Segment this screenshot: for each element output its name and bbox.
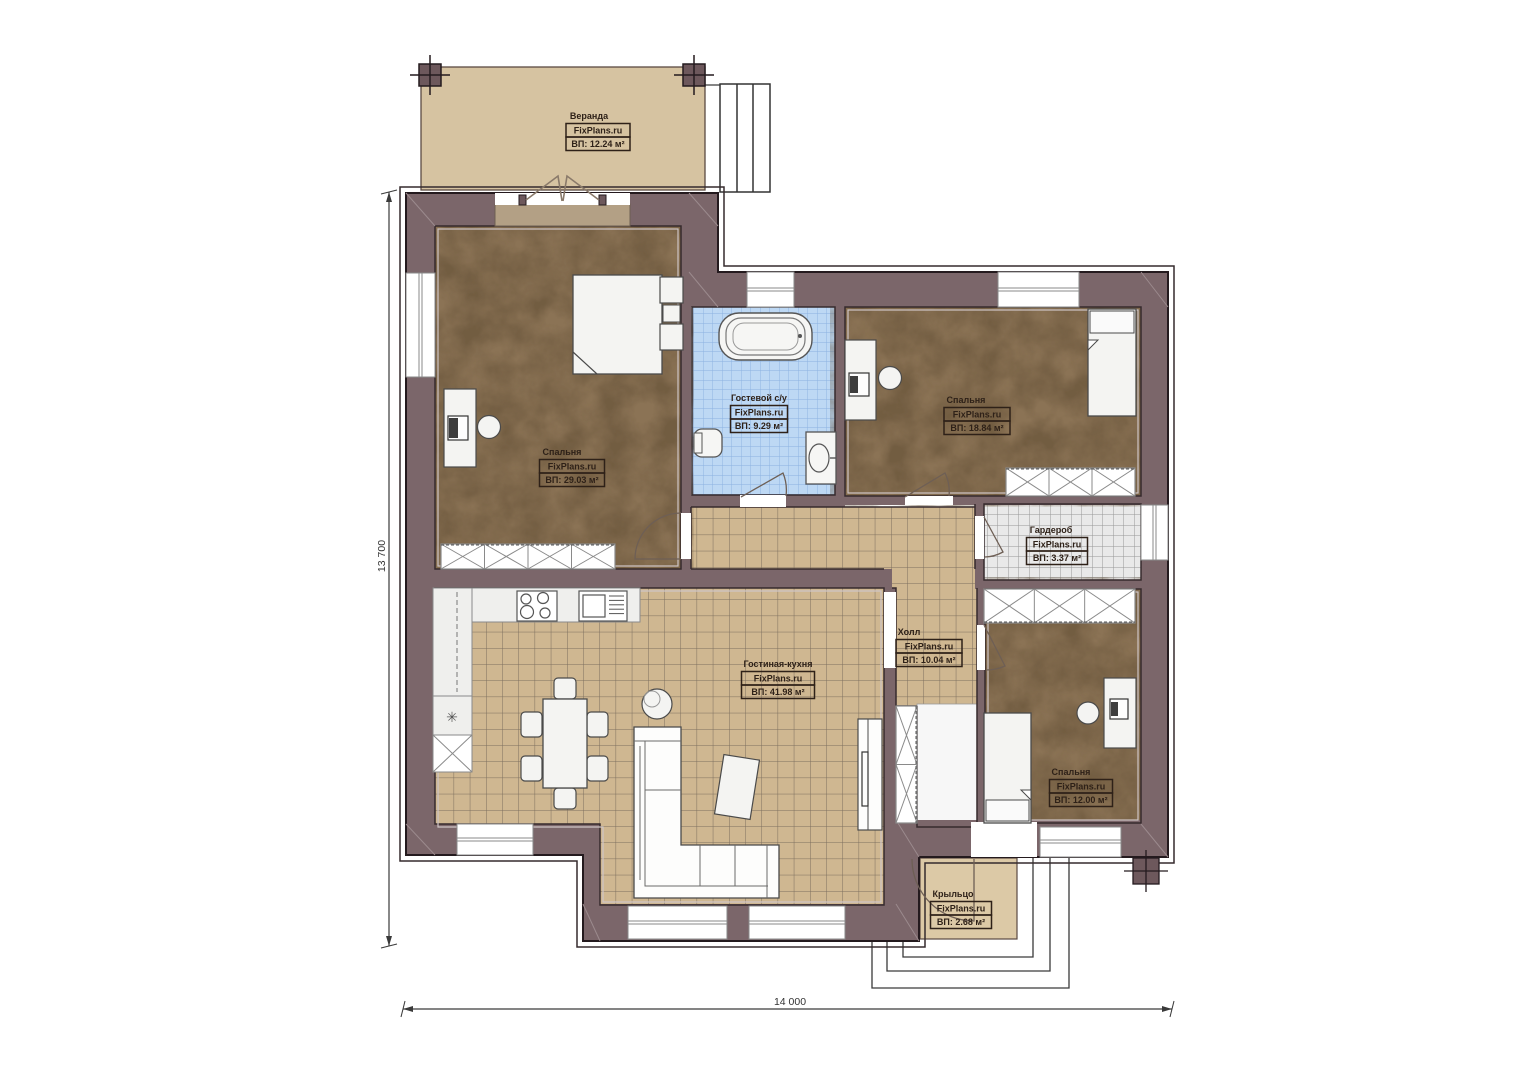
svg-text:Гостиная-кухня: Гостиная-кухня: [744, 659, 813, 669]
svg-text:FixPlans.ru: FixPlans.ru: [754, 674, 803, 684]
svg-text:ВП: 2.68 м²: ВП: 2.68 м²: [937, 917, 985, 927]
svg-text:Спальня: Спальня: [1052, 767, 1091, 777]
svg-text:ВП: 3.37 м²: ВП: 3.37 м²: [1033, 553, 1081, 563]
svg-text:FixPlans.ru: FixPlans.ru: [735, 408, 784, 418]
svg-text:ВП: 29.03 м²: ВП: 29.03 м²: [545, 475, 598, 485]
svg-text:Спальня: Спальня: [543, 447, 582, 457]
svg-text:Веранда: Веранда: [570, 111, 609, 121]
svg-text:13 700: 13 700: [376, 540, 388, 572]
svg-text:Спальня: Спальня: [947, 395, 986, 405]
svg-text:Гардероб: Гардероб: [1030, 525, 1073, 535]
svg-text:FixPlans.ru: FixPlans.ru: [937, 904, 986, 914]
svg-text:FixPlans.ru: FixPlans.ru: [1057, 782, 1106, 792]
svg-text:ВП: 41.98 м²: ВП: 41.98 м²: [751, 687, 804, 697]
svg-text:FixPlans.ru: FixPlans.ru: [574, 126, 623, 136]
svg-text:ВП: 12.24 м²: ВП: 12.24 м²: [571, 139, 624, 149]
svg-text:ВП: 10.04 м²: ВП: 10.04 м²: [902, 655, 955, 665]
svg-text:14 000: 14 000: [774, 996, 806, 1008]
svg-text:Гостевой с/у: Гостевой с/у: [731, 393, 787, 403]
svg-text:ВП: 18.84 м²: ВП: 18.84 м²: [950, 423, 1003, 433]
svg-text:✳: ✳: [446, 709, 458, 725]
svg-text:ВП: 12.00 м²: ВП: 12.00 м²: [1054, 795, 1107, 805]
svg-text:FixPlans.ru: FixPlans.ru: [905, 642, 954, 652]
svg-text:Крыльцо: Крыльцо: [933, 889, 974, 899]
svg-text:ВП: 9.29 м²: ВП: 9.29 м²: [735, 421, 783, 431]
svg-text:FixPlans.ru: FixPlans.ru: [1033, 540, 1082, 550]
svg-text:FixPlans.ru: FixPlans.ru: [548, 462, 597, 472]
svg-text:FixPlans.ru: FixPlans.ru: [953, 410, 1002, 420]
svg-text:Холл: Холл: [898, 627, 921, 637]
